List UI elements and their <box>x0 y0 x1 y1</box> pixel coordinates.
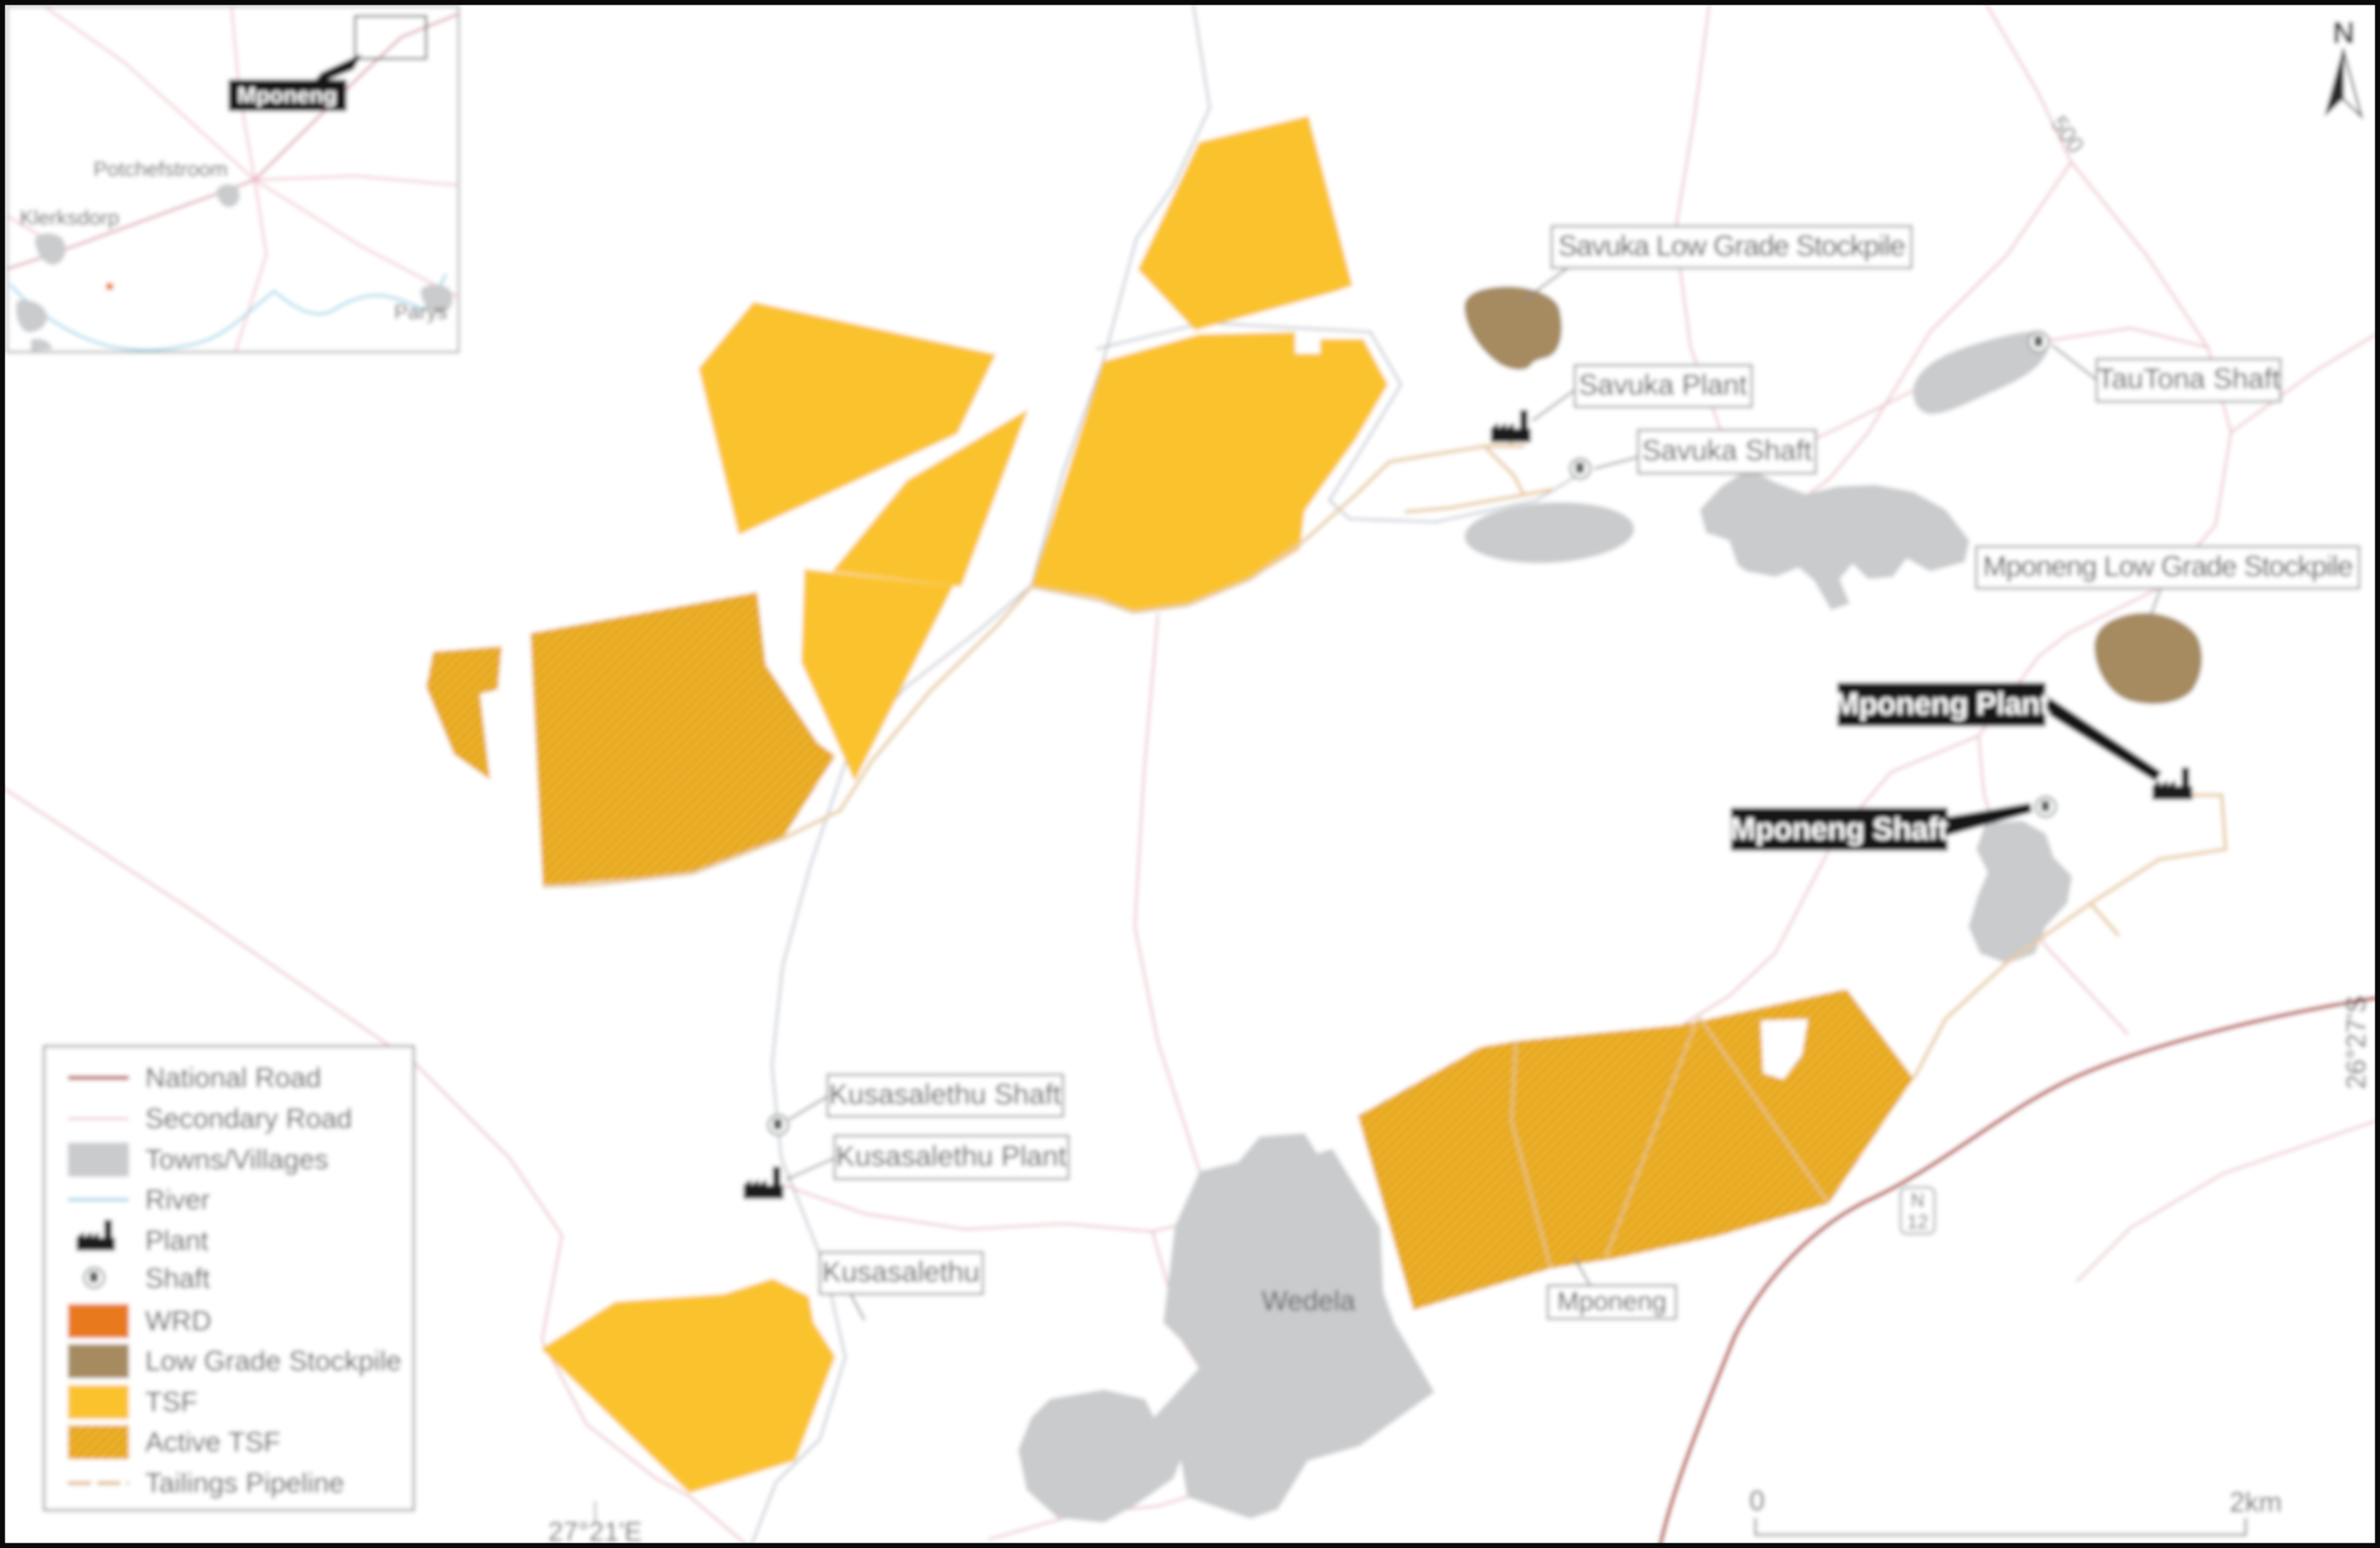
svg-text:Low Grade Stockpile: Low Grade Stockpile <box>145 1345 401 1377</box>
svg-text:Savuka Plant: Savuka Plant <box>1579 369 1748 401</box>
svg-text:TauTona Shaft: TauTona Shaft <box>2097 363 2280 395</box>
svg-text:Savuka Low Grade Stockpile: Savuka Low Grade Stockpile <box>1558 230 1904 262</box>
svg-text:Mponeng Shaft: Mponeng Shaft <box>1730 812 1948 846</box>
svg-text:0: 0 <box>1749 1485 1765 1516</box>
svg-text:12: 12 <box>1907 1211 1928 1233</box>
svg-text:National Road: National Road <box>145 1062 321 1093</box>
svg-text:Tailings Pipeline: Tailings Pipeline <box>145 1467 344 1499</box>
svg-text:Towns/Villages: Towns/Villages <box>145 1143 328 1175</box>
svg-text:Mponeng Plant: Mponeng Plant <box>1833 687 2050 721</box>
svg-text:26°27'S: 26°27'S <box>2341 995 2372 1089</box>
svg-text:Plant: Plant <box>145 1225 208 1256</box>
svg-text:Mponeng: Mponeng <box>238 83 337 108</box>
svg-text:Potchefstroom: Potchefstroom <box>93 158 228 181</box>
svg-text:Active TSF: Active TSF <box>145 1426 280 1458</box>
svg-text:Parys: Parys <box>394 300 447 323</box>
svg-text:2km: 2km <box>2229 1486 2282 1518</box>
svg-text:Klerksdorp: Klerksdorp <box>19 206 119 229</box>
svg-text:Shaft: Shaft <box>145 1262 210 1294</box>
svg-text:N: N <box>1911 1190 1925 1211</box>
svg-text:Kusasalethu Plant: Kusasalethu Plant <box>836 1140 1067 1172</box>
svg-text:Secondary Road: Secondary Road <box>145 1103 352 1134</box>
svg-text:Kusasalethu Shaft: Kusasalethu Shaft <box>829 1079 1061 1110</box>
svg-text:Wedela: Wedela <box>1261 1285 1356 1316</box>
svg-text:WRD: WRD <box>145 1305 212 1336</box>
svg-text:Mponeng: Mponeng <box>1557 1287 1667 1316</box>
svg-text:Kusasalethu: Kusasalethu <box>822 1256 980 1288</box>
svg-text:N: N <box>2333 16 2355 50</box>
svg-text:Mponeng Low Grade Stockpile: Mponeng Low Grade Stockpile <box>1983 550 2353 582</box>
svg-text:Savuka Shaft: Savuka Shaft <box>1642 435 1813 466</box>
svg-text:River: River <box>145 1184 210 1215</box>
svg-text:TSF: TSF <box>145 1386 198 1418</box>
